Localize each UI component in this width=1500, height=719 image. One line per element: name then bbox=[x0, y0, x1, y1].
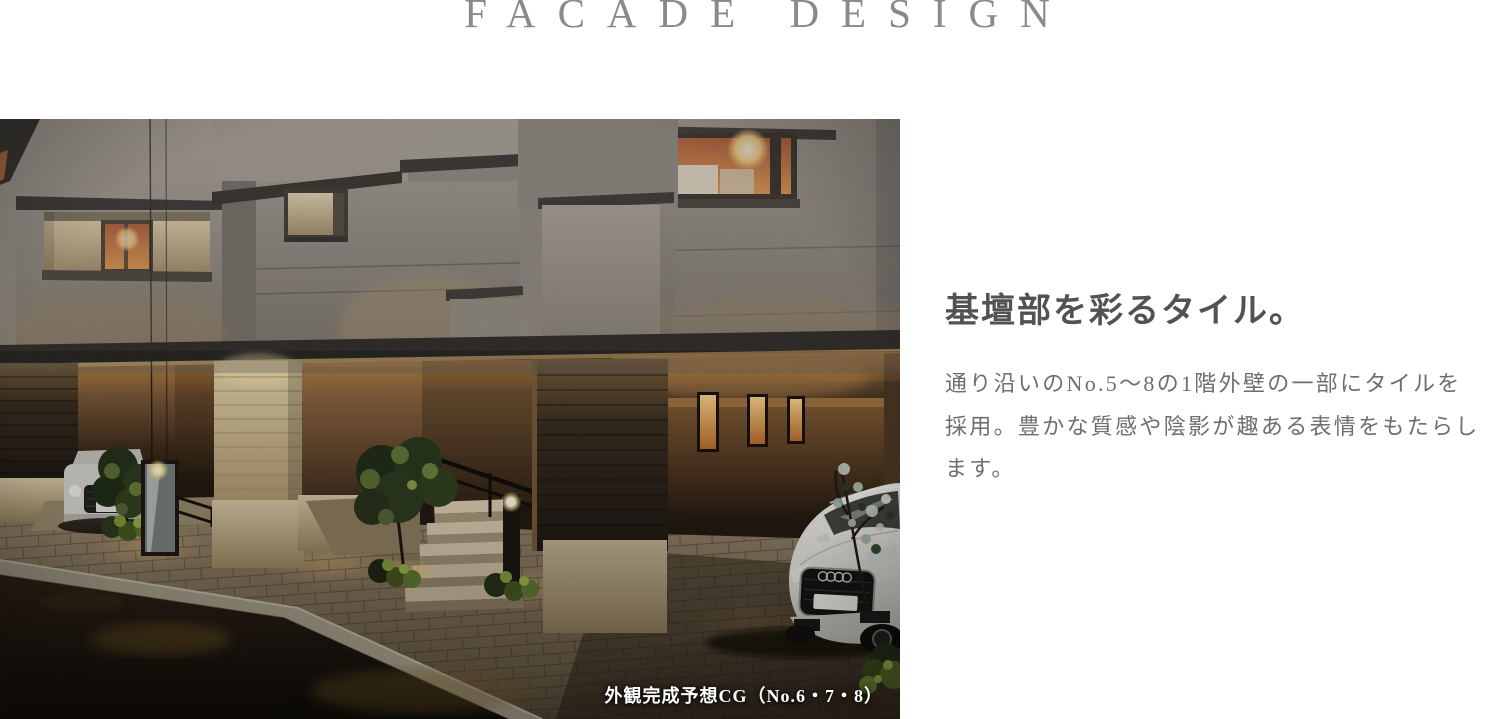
photo-caption: 外観完成予想CG（No.6・7・8） bbox=[605, 682, 884, 708]
facade-photo: 外観完成予想CG（No.6・7・8） bbox=[0, 119, 900, 719]
section-body: 通り沿いのNo.5～8の1階外壁の一部にタイルを 採用。豊かな質感や陰影が趣ある… bbox=[945, 363, 1485, 491]
page-root: FACADE DESIGN bbox=[0, 0, 1500, 719]
section-body-line: ます。 bbox=[945, 448, 1485, 491]
texture-overlays bbox=[0, 119, 900, 719]
section-body-line: 採用。豊かな質感や陰影が趣ある表情をもたらし bbox=[945, 406, 1485, 449]
facade-photo-illustration bbox=[0, 119, 900, 719]
page-title: FACADE DESIGN bbox=[14, 0, 1500, 36]
section-body-line: 通り沿いのNo.5～8の1階外壁の一部にタイルを bbox=[945, 363, 1485, 406]
section-heading: 基壇部を彩るタイル。 bbox=[945, 292, 1485, 333]
